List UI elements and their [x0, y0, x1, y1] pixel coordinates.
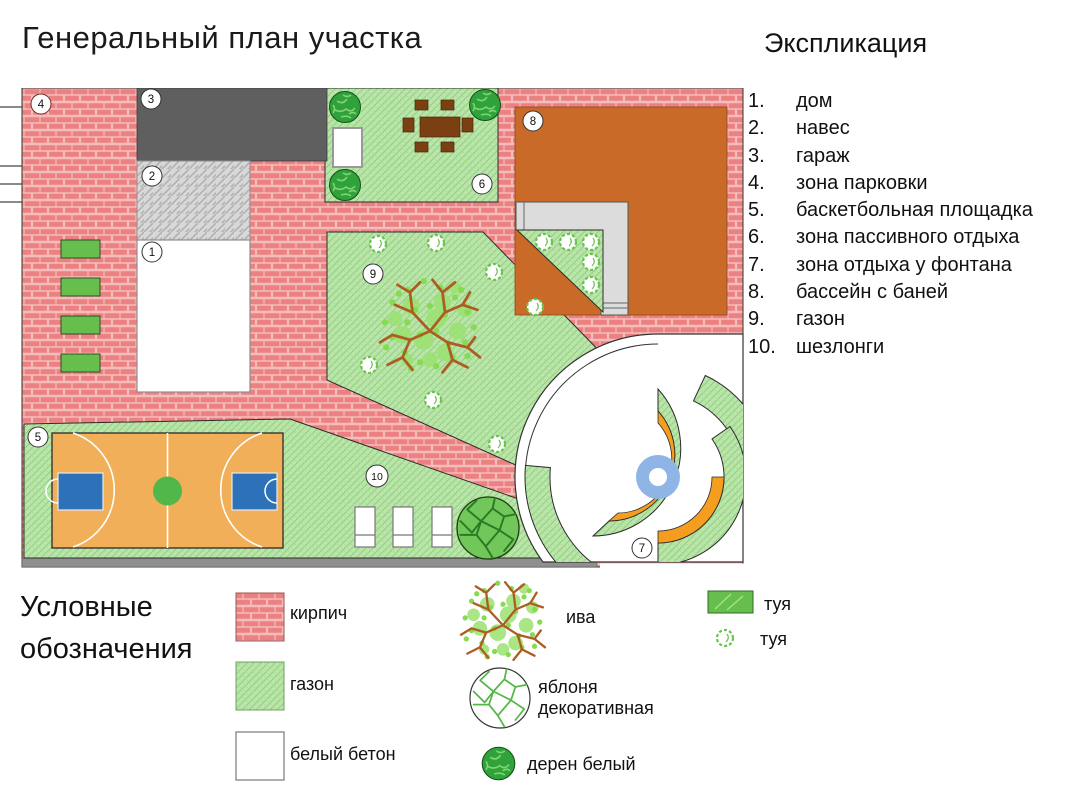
thuja-hedge-icon [707, 590, 755, 615]
site-plan: 1 2 3 4 5 6 7 8 9 10 [0, 88, 746, 568]
zone-badge-4: 4 [38, 99, 45, 111]
page: Генеральный план участка [0, 0, 1076, 797]
zone-badge-8: 8 [530, 116, 536, 128]
legend-material-label: кирпич [290, 603, 347, 624]
brick-swatch-icon [235, 592, 285, 642]
legend-material-label: белый бетон [290, 744, 396, 765]
explication-item: 5.баскетбольная площадка [748, 197, 1074, 224]
plan-bottom-wall [22, 558, 597, 567]
explication-item: 7.зона отдыха у фонтана [748, 252, 1074, 279]
fountain-center [649, 468, 667, 486]
dogwood-icon [480, 745, 517, 782]
explication-list: 1.дом 2.навес 3.гараж 4.зона парковки 5.… [748, 88, 1074, 361]
legend-heading: Условные обозначения [20, 586, 245, 670]
zone-badge-1: 1 [149, 247, 155, 259]
apple-tree-icon [467, 665, 533, 731]
garden-table [420, 117, 460, 137]
zone-garage [137, 88, 327, 161]
explication-item: 9.газон [748, 306, 1074, 333]
explication-item: 3.гараж [748, 143, 1074, 170]
zone-badge-2: 2 [149, 171, 155, 183]
page-title: Генеральный план участка [22, 20, 422, 56]
sun-loungers [355, 507, 452, 547]
zone-badge-5: 5 [35, 432, 41, 444]
legend-plant-label: яблоня декоративная [538, 677, 678, 719]
zone-house [137, 240, 250, 392]
zone-badge-9: 9 [370, 269, 376, 281]
lawn-swatch-icon [235, 661, 285, 711]
dogwood-tree [330, 170, 361, 201]
entrance-tick-marks [0, 107, 22, 202]
explication-item: 2.навес [748, 115, 1074, 142]
legend-plant-label: туя [760, 629, 787, 650]
dogwood-tree [470, 90, 501, 121]
explication-item: 10.шезлонги [748, 334, 1074, 361]
zone-badge-10: 10 [371, 471, 383, 483]
court-key-left [58, 473, 103, 510]
dogwood-tree [330, 92, 361, 123]
legend-plant-label: ива [566, 607, 595, 628]
explication-item: 6.зона пассивного отдыха [748, 224, 1074, 251]
zone-badge-3: 3 [148, 94, 154, 106]
zone-badge-7: 7 [639, 543, 645, 555]
thuja-circle-icon [713, 626, 737, 650]
court-center-circle [153, 477, 182, 506]
garden-bench [333, 128, 362, 167]
zone-badge-6: 6 [479, 179, 485, 191]
court-key-right [232, 473, 277, 510]
edge-mask [600, 564, 746, 569]
white-concrete-swatch-icon [235, 731, 285, 781]
explication-heading: Экспликация [764, 28, 927, 59]
explication-item: 8.бассейн с баней [748, 279, 1074, 306]
apple-tree [457, 497, 519, 559]
legend-material-label: газон [290, 674, 334, 695]
legend-plant-label: дерен белый [527, 754, 636, 775]
legend-plant-label: туя [764, 594, 791, 615]
explication-item: 1.дом [748, 88, 1074, 115]
basketball-court [46, 433, 283, 548]
explication-item: 4.зона парковки [748, 170, 1074, 197]
willow-icon [448, 572, 558, 668]
